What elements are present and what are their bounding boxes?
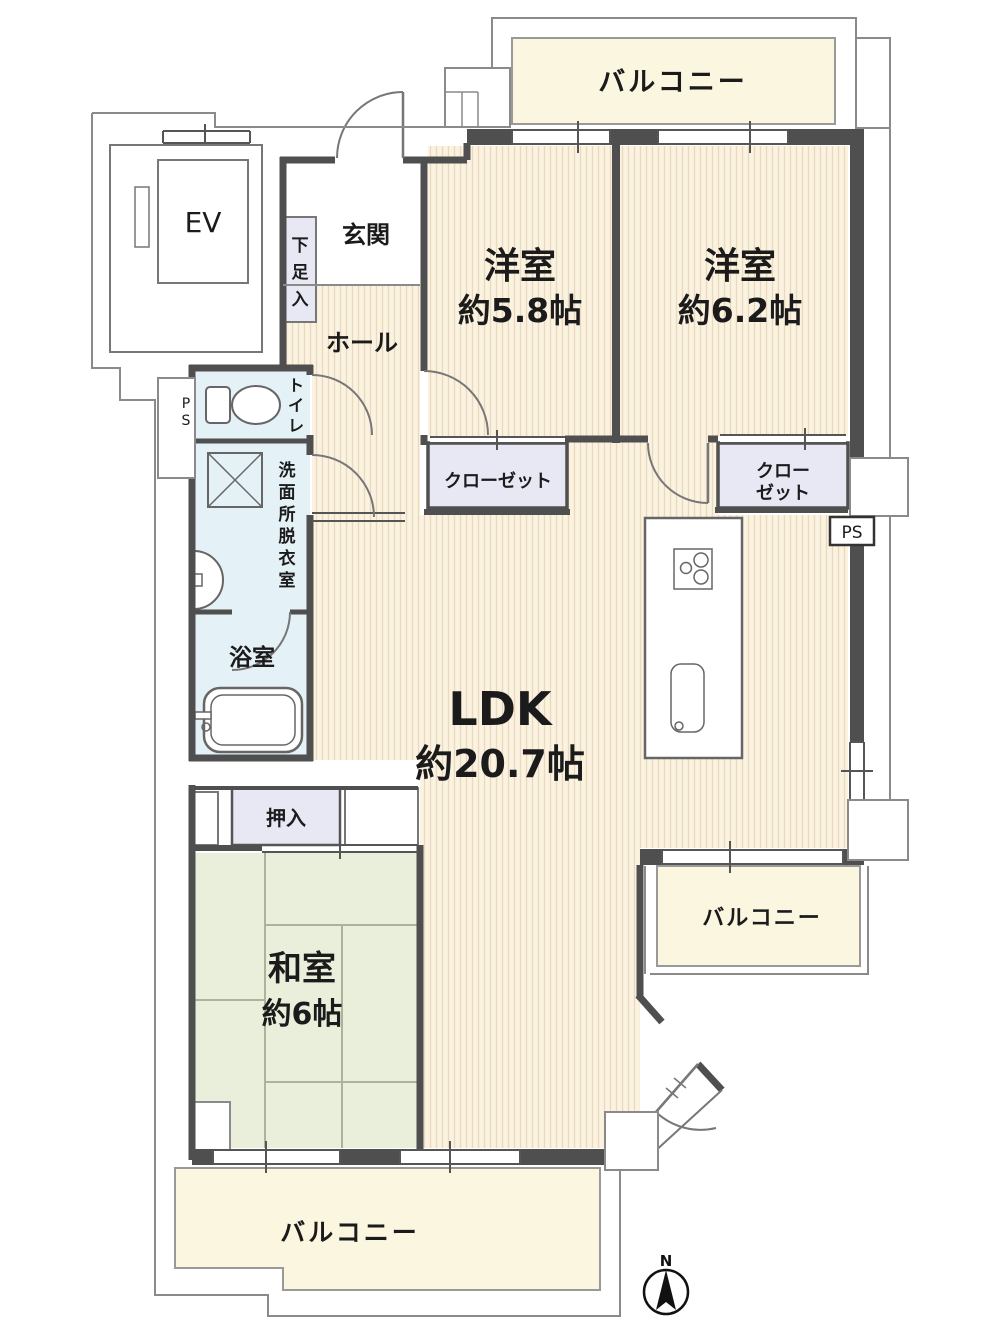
entrance-door (337, 92, 403, 158)
pillar-right-2 (848, 800, 908, 860)
elevator-door-icon (135, 187, 149, 247)
svg-text:LDK: LDK (448, 682, 553, 736)
bathroom-label: 浴室 (229, 644, 275, 671)
pillar-right-1 (850, 458, 908, 516)
shoe-cabinet-label: 下 足 入 (292, 236, 309, 310)
floor-fills (175, 38, 860, 1290)
closet2-label: クロー ゼット (756, 461, 810, 504)
pillar-bottom-right (605, 1112, 658, 1170)
elevator-hall (110, 145, 262, 352)
compass-north-label: N (660, 1252, 673, 1270)
svg-text:脱: 脱 (279, 526, 296, 547)
hall-label: ホール (326, 329, 398, 357)
bathtub-icon (195, 688, 302, 752)
balcony-top-label: バルコニー (598, 67, 747, 98)
kitchen-sink-icon (671, 664, 704, 732)
svg-text:約20.7帖: 約20.7帖 (415, 742, 585, 786)
utility-box-top (445, 68, 510, 127)
svg-text:面: 面 (279, 483, 296, 503)
balcony-bottom-label: バルコニー (280, 1218, 420, 1247)
svg-text:所: 所 (279, 505, 296, 525)
svg-text:洋室: 洋室 (704, 246, 776, 287)
kitchen-island (645, 518, 742, 758)
svg-text:レ: レ (288, 416, 304, 435)
svg-text:クロー: クロー (756, 461, 810, 482)
oshiire-label: 押入 (266, 806, 306, 830)
svg-text:約6.2帖: 約6.2帖 (678, 291, 802, 330)
toilet-label: ト イ レ (288, 376, 304, 435)
elevator-label: EV (185, 206, 222, 239)
toilet-icon (206, 386, 280, 424)
storage-nook-right (345, 788, 418, 845)
svg-text:室: 室 (279, 570, 296, 591)
svg-text:S: S (182, 413, 191, 429)
floor-plan: N バルコニー バルコニー バルコニー 洋室 約5.8帖 洋室 約6.2帖 LD… (0, 0, 1000, 1333)
svg-text:イ: イ (288, 396, 304, 415)
svg-text:洋室: 洋室 (484, 246, 556, 287)
svg-text:約6帖: 約6帖 (262, 997, 343, 1032)
entrance-label: 玄関 (342, 221, 390, 249)
balcony-right-label: バルコニー (702, 906, 822, 931)
svg-text:和室: 和室 (268, 949, 336, 989)
floor-plan-canvas: N バルコニー バルコニー バルコニー 洋室 約5.8帖 洋室 約6.2帖 LD… (0, 0, 1000, 1333)
svg-text:下: 下 (292, 236, 309, 256)
closet1-label: クローゼット (444, 470, 552, 492)
pipe-space-left-label: P S (182, 396, 191, 429)
svg-text:P: P (182, 396, 190, 412)
pipe-space-right-label: PS (841, 523, 862, 543)
svg-text:衣: 衣 (279, 548, 296, 569)
pillar-top-right (856, 38, 890, 128)
svg-text:入: 入 (292, 290, 309, 310)
svg-text:ト: ト (288, 376, 304, 395)
wall-notch (192, 1102, 230, 1155)
svg-text:ゼット: ゼット (756, 482, 810, 504)
svg-text:洗: 洗 (279, 460, 296, 481)
svg-text:約5.8帖: 約5.8帖 (458, 291, 582, 330)
svg-text:足: 足 (292, 263, 309, 283)
compass: N (644, 1252, 688, 1314)
